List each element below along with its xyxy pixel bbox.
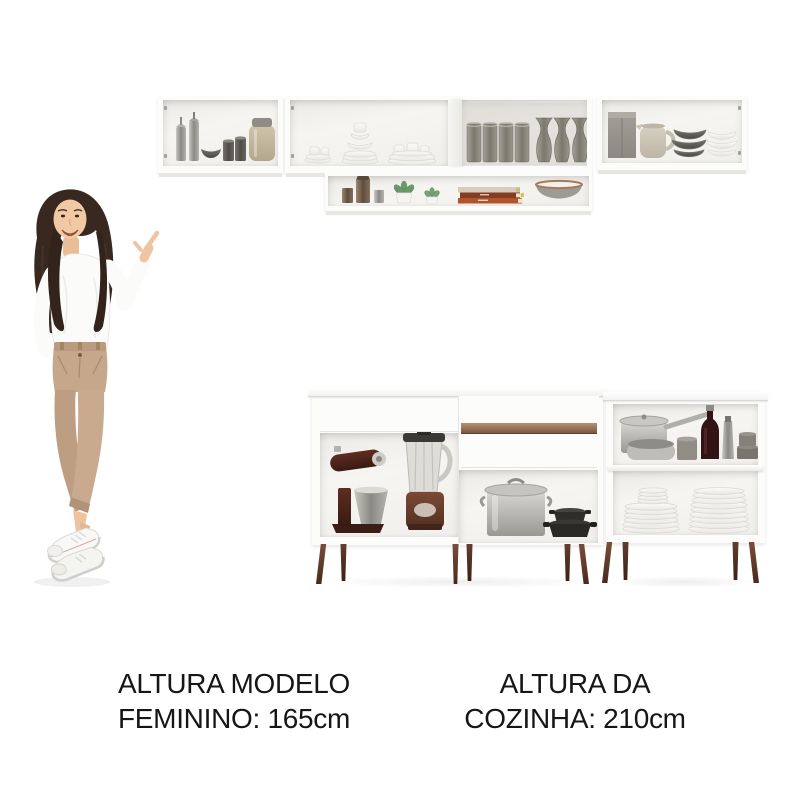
plate-stack-left xyxy=(623,488,679,533)
metal-canisters xyxy=(342,176,384,203)
caption-model-height-line1: ALTURA MODELO xyxy=(64,666,404,701)
wall-cabinet-middle xyxy=(285,96,592,173)
product-image-stage: ALTURA MODELO FEMININO: 165cm ALTURA DA … xyxy=(0,0,800,800)
cast-iron-pans xyxy=(543,508,597,537)
caption-kitchen-height-line2: COZINHA: 210cm xyxy=(405,701,745,736)
dark-bowl-stack xyxy=(672,130,706,157)
left-cabinet-items xyxy=(163,103,278,165)
succulent-plant xyxy=(392,181,415,203)
drawer xyxy=(459,396,599,470)
wall-shelf-extension-interior xyxy=(328,176,589,206)
wall-cabinet-right-interior xyxy=(602,100,742,163)
succulent-plant-small xyxy=(423,188,440,205)
wall-cabinet-middle-right-interior xyxy=(462,100,587,166)
cookware-shelf xyxy=(613,404,758,465)
beige-jar xyxy=(249,118,275,161)
right-arm-forearm xyxy=(125,262,144,304)
gray-box xyxy=(608,112,636,158)
metal-flask xyxy=(722,416,734,459)
gray-bowl xyxy=(201,149,221,158)
pot-items xyxy=(459,469,598,542)
countertop-right xyxy=(603,392,768,401)
shelf-decor-items xyxy=(328,175,589,205)
floor-shadow xyxy=(320,576,600,588)
plate-shelf xyxy=(613,471,758,535)
pot-compartment xyxy=(459,470,598,543)
cabinet-bottom-face xyxy=(159,173,282,177)
cabinet-leg xyxy=(728,542,743,580)
stockpot xyxy=(481,480,551,537)
gray-canisters xyxy=(737,432,758,459)
book-stack xyxy=(458,187,524,204)
cabinet-bottom-face xyxy=(598,170,746,174)
wall-cabinet-middle-left-interior xyxy=(290,100,448,166)
base-cabinet-left xyxy=(312,387,603,545)
pointing-finger xyxy=(148,233,157,246)
plate-stacks xyxy=(613,470,758,534)
middle-cabinet-divider xyxy=(448,100,462,166)
drawer-seam xyxy=(461,467,597,468)
steel-canisters xyxy=(176,112,199,161)
caption-model-height-line2: FEMININO: 165cm xyxy=(64,701,404,736)
caption-model-height: ALTURA MODELO FEMININO: 165cm xyxy=(64,666,404,736)
appliance-items xyxy=(320,432,458,536)
wall-cabinet-left-interior xyxy=(163,100,278,166)
gray-pot xyxy=(677,439,697,460)
frying-pan xyxy=(627,439,675,460)
base-cabinet-right xyxy=(606,392,765,543)
drawer-handle xyxy=(461,423,597,434)
plate-stack-right xyxy=(689,488,749,534)
beige-pitcher xyxy=(635,124,674,159)
right-cabinet-items xyxy=(602,102,742,162)
thumb xyxy=(135,243,141,250)
floor-shadow xyxy=(606,576,761,588)
appliance-compartment xyxy=(320,433,458,537)
hand xyxy=(144,248,149,258)
tall-glasses xyxy=(536,118,587,162)
white-bowl-stack xyxy=(707,132,737,156)
stand-mixer xyxy=(329,446,388,533)
wall-cabinet-left xyxy=(158,96,283,173)
cabinet-bottom-face xyxy=(326,211,591,215)
caption-kitchen-height-line1: ALTURA DA xyxy=(405,666,745,701)
cabinet-leg xyxy=(618,542,633,580)
gray-glasses xyxy=(462,103,587,165)
caption-kitchen-height: ALTURA DA COZINHA: 210cm xyxy=(405,666,745,736)
dark-cups xyxy=(223,136,246,161)
cookware-items xyxy=(613,404,758,464)
serving-bowl xyxy=(536,181,582,199)
blender xyxy=(403,432,450,530)
wall-cabinet-right xyxy=(597,96,747,170)
white-dishes xyxy=(290,103,448,165)
model-woman-pointing xyxy=(8,186,176,588)
wall-shelf-extension xyxy=(325,173,592,211)
